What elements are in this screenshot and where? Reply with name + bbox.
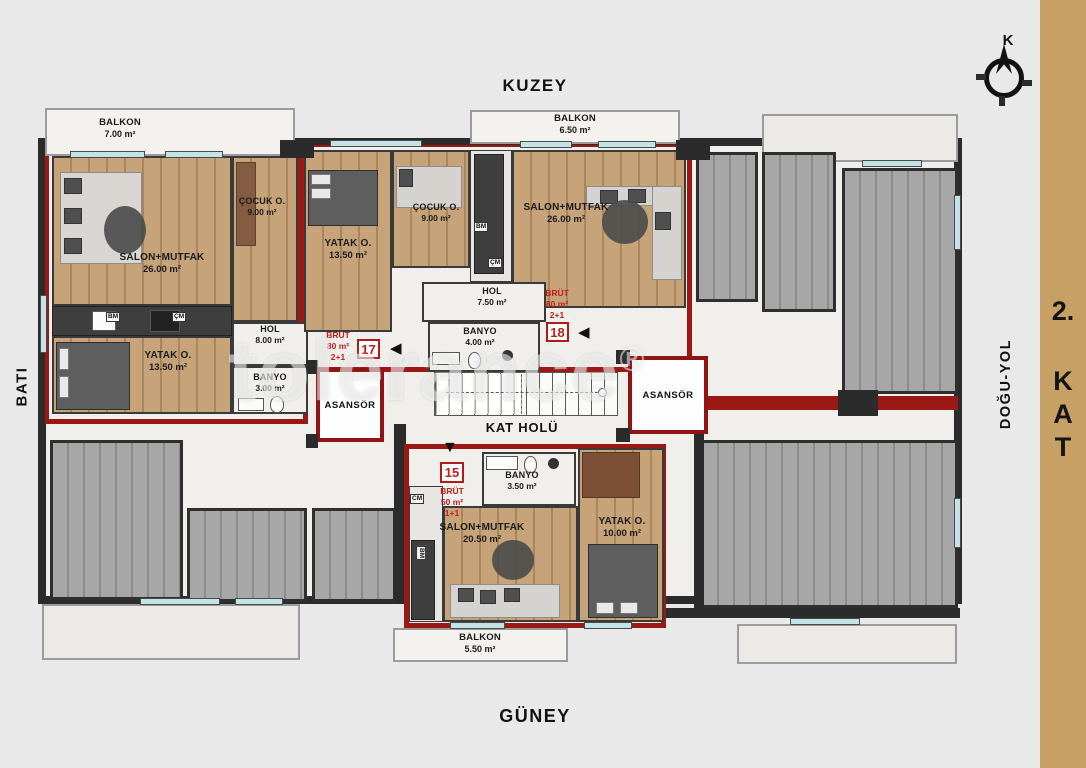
appliance-chip-bm: BM <box>416 546 426 560</box>
direction-east: DOĞU-YOL <box>998 324 1014 444</box>
wall <box>640 608 960 618</box>
pillow <box>399 169 413 187</box>
floor-label-line: A <box>1045 399 1081 430</box>
window <box>140 598 220 605</box>
unit-18-entry-info: BRÜT80 m²2+1 <box>537 288 577 321</box>
window <box>954 498 961 548</box>
direction-north: KUZEY <box>460 76 610 96</box>
window <box>598 141 656 148</box>
pillow <box>59 376 69 398</box>
pillow <box>59 348 69 370</box>
gray-room <box>187 508 307 602</box>
window <box>70 151 145 158</box>
compass-north-letter: K <box>998 32 1018 49</box>
cushion <box>64 208 82 224</box>
pillow <box>620 602 638 614</box>
registered-mark: ® <box>619 340 645 378</box>
direction-south: GÜNEY <box>455 706 615 727</box>
compass-tick <box>976 74 986 80</box>
window <box>584 622 632 629</box>
window <box>235 598 283 605</box>
room-label-yatak15: YATAK O.10.00 m² <box>582 516 662 540</box>
gray-room <box>696 152 758 302</box>
cushion <box>480 590 496 604</box>
balcony-gray-bottom-left <box>42 604 300 660</box>
floor-label-line: T <box>1045 432 1081 463</box>
window <box>862 160 922 167</box>
cushion <box>655 212 671 230</box>
appliance-chip-cm: ÇM <box>172 312 186 322</box>
window <box>40 295 47 353</box>
wall <box>280 140 314 158</box>
pillow <box>311 188 331 199</box>
window <box>520 141 572 148</box>
shower-drain <box>548 458 559 469</box>
window <box>954 195 961 250</box>
corridor-red-wall <box>692 396 958 410</box>
sofa <box>652 186 682 280</box>
rug <box>104 206 146 254</box>
window <box>330 140 422 147</box>
appliance-chip-bm: BM <box>106 312 120 322</box>
floor-label-line: K <box>1045 366 1081 397</box>
floor-hall-label: KAT HOLÜ <box>462 420 582 435</box>
direction-west: BATI <box>14 337 31 437</box>
floor-label-line: 2. <box>1045 296 1081 327</box>
wall <box>676 140 710 160</box>
appliance-chip-bm: BM <box>474 222 488 232</box>
room-label-yatak17: YATAK O.13.50 m² <box>128 350 208 374</box>
room-label-cocuk18: ÇOCUK O.9.00 m² <box>394 202 478 223</box>
gray-room <box>700 440 958 608</box>
room-label-yatak18: YATAK O.13.50 m² <box>308 238 388 262</box>
bathroom-sink <box>486 456 518 470</box>
room-label-hol18: HOL7.50 m² <box>462 286 522 307</box>
elevator-label: ASANSÖR <box>642 390 693 401</box>
pillow <box>596 602 614 614</box>
rug <box>492 540 534 580</box>
room-label-balkon18: BALKON6.50 m² <box>515 113 635 136</box>
pillow <box>311 174 331 185</box>
floor-plan-canvas: 2. K A T KUZEY GÜNEY BATI DOĞU-YOL K <box>0 0 1086 768</box>
room-label-salon18: SALON+MUTFAK26.00 m² <box>496 202 636 226</box>
compass-tick <box>999 96 1005 106</box>
kitchen-counter-17 <box>52 306 232 336</box>
unit-15-number: 15 <box>440 462 464 483</box>
unit-15-entry-info: BRÜT50 m²1+1 <box>428 486 476 519</box>
wall <box>694 416 704 608</box>
room-label-balkon17: BALKON7.00 m² <box>60 117 180 140</box>
appliance-chip-cm: ÇM <box>488 258 502 268</box>
cushion <box>64 238 82 254</box>
room-label-salon17: SALON+MUTFAK26.00 m² <box>92 252 232 276</box>
gray-room <box>312 508 396 602</box>
cushion <box>64 178 82 194</box>
wall <box>306 434 318 448</box>
unit-15-entry-arrow: ▼ <box>442 440 458 456</box>
closet <box>582 452 640 498</box>
gray-room <box>842 168 958 394</box>
room-label-salon15: SALON+MUTFAK20.50 m² <box>412 522 552 546</box>
gray-room <box>50 440 183 600</box>
room-label-banyo15: BANYO3.50 m² <box>484 470 560 491</box>
window <box>790 618 860 625</box>
compass-tick <box>1022 80 1032 86</box>
corridor-door-block <box>838 390 878 416</box>
cushion <box>504 588 520 602</box>
watermark: tolerance® <box>228 322 645 421</box>
window <box>165 151 223 158</box>
balcony-gray-bottom-right <box>737 624 957 664</box>
room-label-cocuk17: ÇOCUK O.9.00 m² <box>222 196 302 217</box>
appliance-chip-cm: CM <box>410 494 424 504</box>
wall <box>616 428 630 442</box>
window <box>450 622 505 629</box>
gray-room <box>762 152 836 312</box>
cushion <box>458 588 474 602</box>
room-label-balkon15: BALKON5.50 m² <box>420 632 540 655</box>
